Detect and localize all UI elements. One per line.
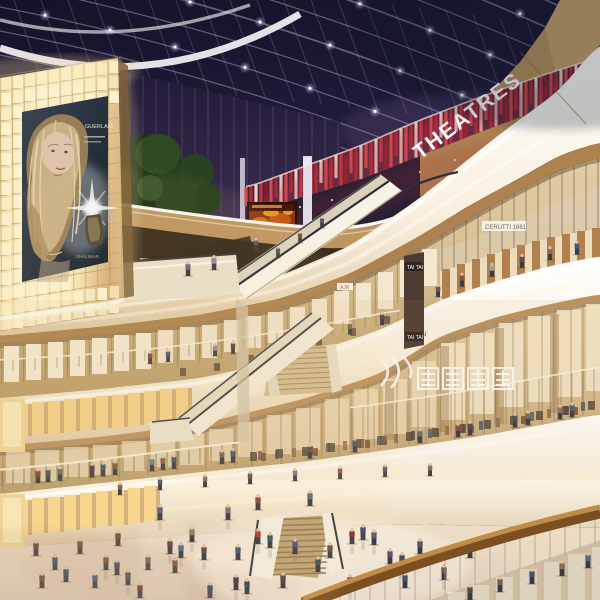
- svg-text:CERUTTI 1881: CERUTTI 1881: [485, 225, 527, 231]
- svg-text:GUERLAIN: GUERLAIN: [85, 124, 113, 130]
- svg-text:TAI TAI: TAI TAI: [407, 265, 423, 271]
